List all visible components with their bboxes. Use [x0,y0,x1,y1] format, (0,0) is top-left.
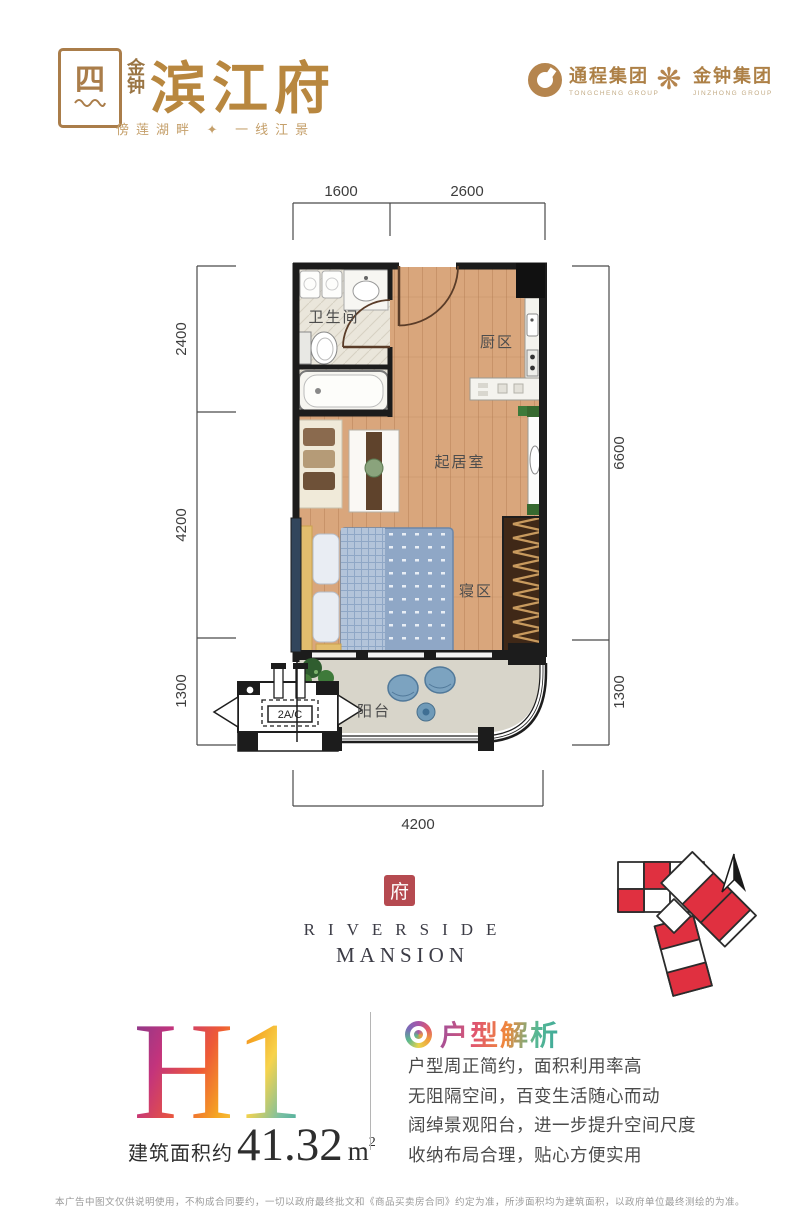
riverside-seal-glyph: 府 [390,877,409,904]
area-unit: m [348,1136,369,1167]
dim-top-2600: 2600 [450,183,483,200]
area-line: 建筑面积约 41.32 m 2 [128,1118,376,1172]
area-label: 建筑面积约 [128,1137,233,1166]
label-ac: 2A/C [278,709,303,721]
area-value: 41.32 [237,1118,343,1172]
analysis-point: 阔绰景观阳台，进一步提升空间尺度 [408,1111,696,1141]
partner-logo-tongcheng: 通程集团 TONGCHENG GROUP [528,62,659,97]
dim-bottom-4200: 4200 [401,816,434,833]
brand-main-title: 滨江府 [150,44,336,125]
analysis-point: 收纳布局合理，贴心方便实用 [408,1141,696,1171]
brand-vertical-text: 金钟 [124,58,146,94]
analysis-point: 无阻隔空间，百变生活随心而动 [408,1082,696,1112]
analysis-title: 户型解析 [440,1014,560,1054]
dim-right-1300: 1300 [611,675,628,708]
label-bathroom: 卫生间 [308,309,359,326]
left-window [291,518,301,652]
north-arrow-icon [722,854,746,892]
seal-wave-icon [73,96,107,110]
brand-tagline: 傍莲湖畔 ✦ 一线江景 [116,119,315,138]
dim-left-2400: 2400 [173,322,190,355]
partner2-sub: JINZHONG GROUP [693,90,773,97]
analysis-header: 户型解析 [405,1014,560,1054]
analysis-badge-icon [405,1021,432,1048]
brand-seal-icon: 四 [58,48,122,128]
dim-left-4200: 4200 [173,508,190,541]
dim-right-6600: 6600 [611,436,628,469]
label-living: 起居室 [434,454,485,471]
floorplan-drawing: 卫生间 厨区 起居室 寝区 阳台 2A/C 1600 2600 2400 [140,168,650,843]
partner1-name: 通程集团 [569,62,659,88]
dim-left-1300: 1300 [173,674,190,707]
label-sleeping: 寝区 [459,582,493,600]
poster-page: 四 金钟 滨江府 傍莲湖畔 ✦ 一线江景 通程集团 TONGCHENG GROU… [0,0,800,1232]
jinzhong-pinwheel-icon: ❋ [652,63,686,97]
keyplan-diagram [598,840,783,1005]
label-kitchen: 厨区 [480,334,514,351]
tongcheng-ring-icon [528,63,562,97]
dim-top-1600: 1600 [324,183,357,200]
analysis-points: 户型周正简约，面积利用率高 无阻隔空间，百变生活随心而动 阔绰景观阳台，进一步提… [408,1052,696,1170]
label-balcony: 阳台 [357,703,391,720]
seal-glyph: 四 [75,66,105,96]
partner2-name: 金钟集团 [693,62,773,88]
riverside-seal: 府 [384,875,415,906]
analysis-point: 户型周正简约，面积利用率高 [408,1052,696,1082]
vertical-divider [370,1012,371,1150]
partner1-sub: TONGCHENG GROUP [569,90,659,97]
disclaimer-text: 本广告中图文仅供说明使用，不构成合同要约，一切以政府最终批文和《商品买卖房合同》… [40,1194,760,1208]
partner-logo-jinzhong: ❋ 金钟集团 JINZHONG GROUP [652,62,773,97]
